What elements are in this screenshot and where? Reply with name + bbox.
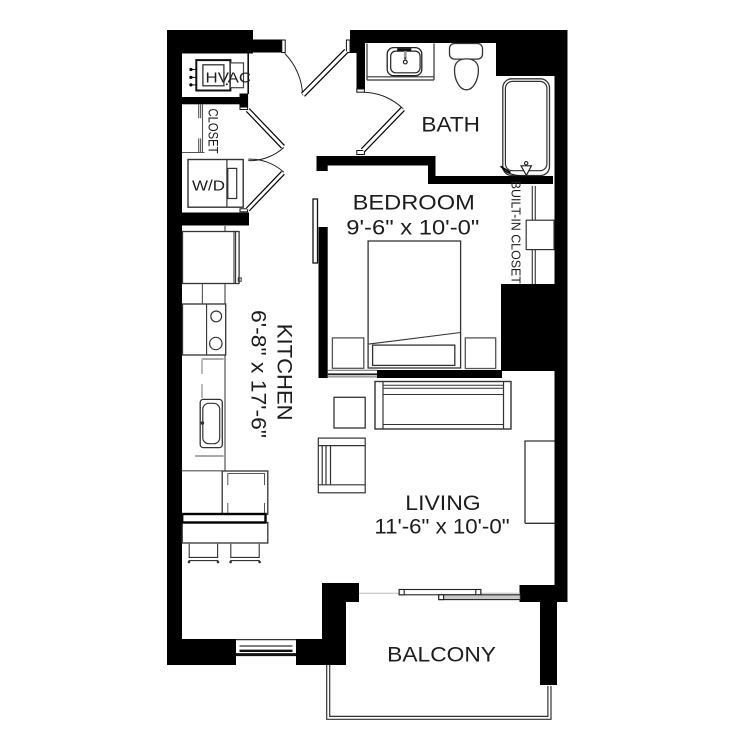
svg-text:LIVING: LIVING xyxy=(405,491,480,515)
svg-text:BEDROOM: BEDROOM xyxy=(353,191,475,215)
svg-text:11'-6" x 10'-0": 11'-6" x 10'-0" xyxy=(374,515,509,539)
svg-text:W/D: W/D xyxy=(192,177,225,194)
svg-text:BALCONY: BALCONY xyxy=(387,642,496,666)
svg-text:BATH: BATH xyxy=(421,113,480,137)
svg-text:6'-8" x 17'-6": 6'-8" x 17'-6" xyxy=(247,310,271,438)
svg-text:KITCHEN: KITCHEN xyxy=(272,324,296,421)
svg-text:9'-6" x 10'-0": 9'-6" x 10'-0" xyxy=(346,216,479,240)
svg-text:BUILT-IN CLOSET: BUILT-IN CLOSET xyxy=(508,181,523,284)
svg-text:CLOSET: CLOSET xyxy=(204,109,220,154)
svg-text:HVAC: HVAC xyxy=(206,70,252,86)
